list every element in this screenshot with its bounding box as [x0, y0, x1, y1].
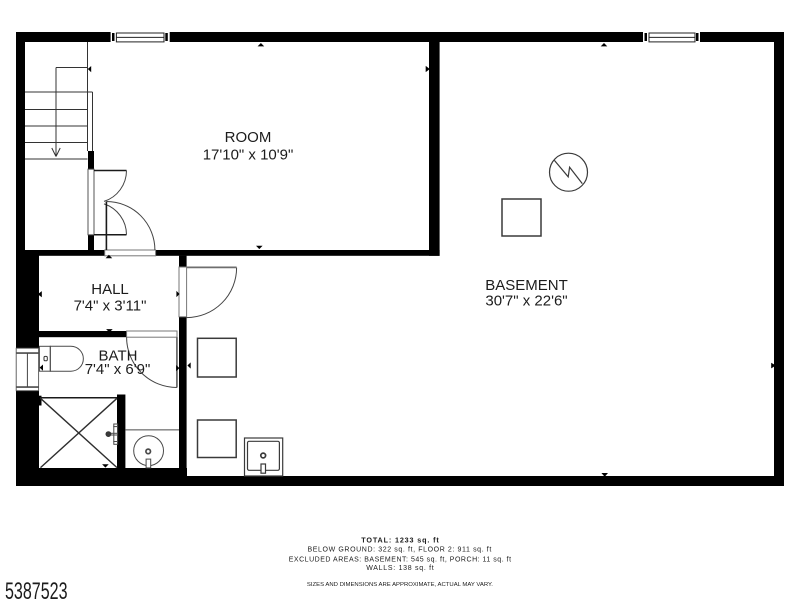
- svg-text:7'4" x 3'11": 7'4" x 3'11": [74, 298, 147, 315]
- svg-text:5387523: 5387523: [5, 579, 68, 600]
- svg-text:SIZES AND DIMENSIONS ARE APPRO: SIZES AND DIMENSIONS ARE APPROXIMATE, AC…: [307, 582, 493, 588]
- svg-text:ROOM: ROOM: [225, 129, 272, 146]
- svg-text:BELOW GROUND: 322 sq. ft, FLOO: BELOW GROUND: 322 sq. ft, FLOOR 2: 911 s…: [308, 546, 492, 553]
- svg-text:EXCLUDED AREAS: BASEMENT: 545: EXCLUDED AREAS: BASEMENT: 545 sq. ft, PO…: [289, 556, 511, 563]
- svg-text:30'7" x 22'6": 30'7" x 22'6": [485, 292, 567, 309]
- svg-text:WALLS: 138 sq. ft: WALLS: 138 sq. ft: [366, 565, 434, 572]
- svg-text:TOTAL: 1233 sq. ft: TOTAL: 1233 sq. ft: [361, 536, 439, 545]
- svg-text:HALL: HALL: [91, 281, 129, 298]
- svg-text:7'4" x 6'9": 7'4" x 6'9": [85, 361, 151, 378]
- svg-text:17'10" x 10'9": 17'10" x 10'9": [203, 146, 294, 163]
